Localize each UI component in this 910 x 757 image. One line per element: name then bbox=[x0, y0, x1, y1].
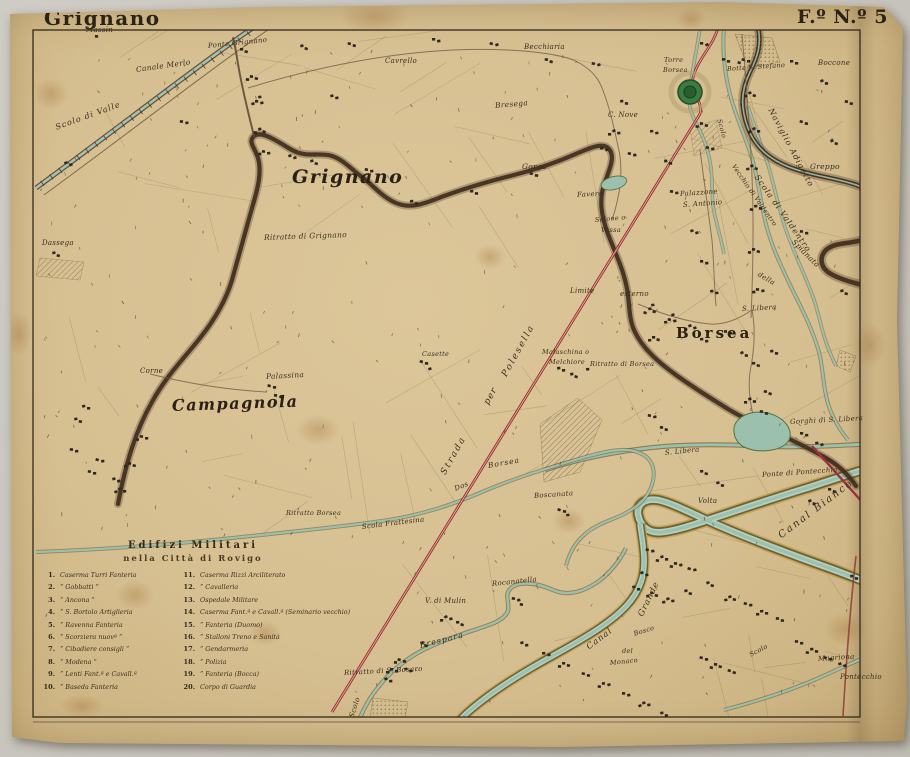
legend-item: 2.” Gobbatti ” bbox=[42, 583, 182, 595]
legend-item: 9.” Lenti Fant.ª e Cavall.ª bbox=[42, 670, 182, 682]
label-malaschina-1: Malaschina o bbox=[542, 349, 589, 356]
legend-item: 12.” Cavalleria bbox=[182, 583, 344, 595]
legend-item: 5.” Ravenna Fanteria bbox=[42, 621, 182, 633]
label-corne: Corne bbox=[140, 368, 163, 375]
scoli-valdentro bbox=[689, 28, 848, 440]
label-dassega: Dassega bbox=[42, 240, 74, 247]
legend-item: 4.” S. Bortolo Artiglieria bbox=[42, 608, 182, 620]
legend-item: 16.” Stalloni Treno e Sanità bbox=[182, 633, 344, 645]
legend-item: 15.” Fanteria (Duomo) bbox=[182, 621, 344, 633]
label-c-nove: C. Nove bbox=[608, 112, 638, 119]
legend-item: 6.” Scorziera nuovª ” bbox=[42, 633, 182, 645]
label-torre-borsea: Borsea bbox=[663, 67, 688, 74]
sheet-title: Grignano bbox=[44, 8, 161, 28]
label-greppo: Greppo bbox=[810, 163, 840, 171]
label-selone-2: Vessa bbox=[601, 227, 621, 234]
label-casette: Casette bbox=[422, 351, 449, 358]
legend-item: 17.” Gendarmeria bbox=[182, 645, 344, 657]
label-boccone: Boccone bbox=[818, 60, 850, 67]
label-massin: Massin bbox=[86, 27, 113, 34]
legend-item: 11.Caserma Rizzi Arciliterato bbox=[182, 571, 344, 583]
legend-item: 20.Corpo di Guardia bbox=[182, 683, 344, 695]
sheet-number: F.º N.º 5 bbox=[797, 8, 888, 27]
road-strada-per-polesella bbox=[332, 28, 718, 712]
scanned-map-page: Grignano F.º N.º 5 Grignano Campagnola B… bbox=[0, 0, 910, 757]
label-v-di-mulin: V. di Mulin bbox=[425, 598, 466, 605]
label-limite: Limite bbox=[570, 288, 595, 295]
legend-title: Edifizi Militari bbox=[42, 540, 344, 551]
legend-column-left: 1.Caserma Turri Fanteria 2.” Gobbatti ” … bbox=[42, 571, 182, 695]
label-borsea-town: Borsea bbox=[676, 326, 752, 341]
legend-edifizi-militari: Edifizi Militari nella Città di Rovigo 1… bbox=[42, 540, 344, 695]
label-grignano-town: Grignano bbox=[292, 168, 403, 187]
legend-subtitle: nella Città di Rovigo bbox=[42, 554, 344, 564]
label-esterno: esterno bbox=[620, 291, 649, 298]
label-pontecchio: Pontecchio bbox=[840, 674, 882, 681]
label-volta: Volta bbox=[698, 498, 717, 505]
legend-item: 8.” Modena ” bbox=[42, 658, 182, 670]
label-gorga: Gorga bbox=[522, 163, 547, 171]
pond-gorghi bbox=[734, 412, 790, 451]
label-cavrello: Cavrello bbox=[385, 58, 417, 65]
label-ritratto-di-borsea: Ritratto di Borsea bbox=[590, 361, 654, 368]
legend-item: 7.” Cibadiere consigli ” bbox=[42, 645, 182, 657]
stream-s-libera bbox=[545, 443, 908, 470]
legend-item: 1.Caserma Turri Fanteria bbox=[42, 571, 182, 583]
legend-item: 19.” Fanteria (Bocca) bbox=[182, 670, 344, 682]
label-favero: Favero bbox=[577, 191, 603, 199]
label-campagnola-town: Campagnola bbox=[172, 394, 299, 414]
label-torre: Torre bbox=[664, 57, 683, 64]
legend-item: 13.Ospedale Militare bbox=[182, 596, 344, 608]
legend-item: 10.” Baseda Fanteria bbox=[42, 683, 182, 695]
legend-item: 18.” Polizia bbox=[182, 658, 344, 670]
legend-item: 14.Caserma Fant.ª e Cavall.ª (Seminario … bbox=[182, 608, 344, 620]
label-becchiaria: Becchiaria bbox=[524, 44, 565, 51]
legend-item: 3.” Ancona ” bbox=[42, 596, 182, 608]
label-ritratto-borsea: Ritratto Borsea bbox=[286, 510, 341, 517]
label-malaschina-2: Melchiore bbox=[549, 359, 585, 366]
map-paper: Grignano F.º N.º 5 Grignano Campagnola B… bbox=[0, 0, 910, 757]
label-del: del bbox=[622, 648, 633, 655]
label-palassina: Palassina bbox=[266, 371, 304, 380]
legend-column-right: 11.Caserma Rizzi Arciliterato 12.” Caval… bbox=[182, 571, 344, 695]
